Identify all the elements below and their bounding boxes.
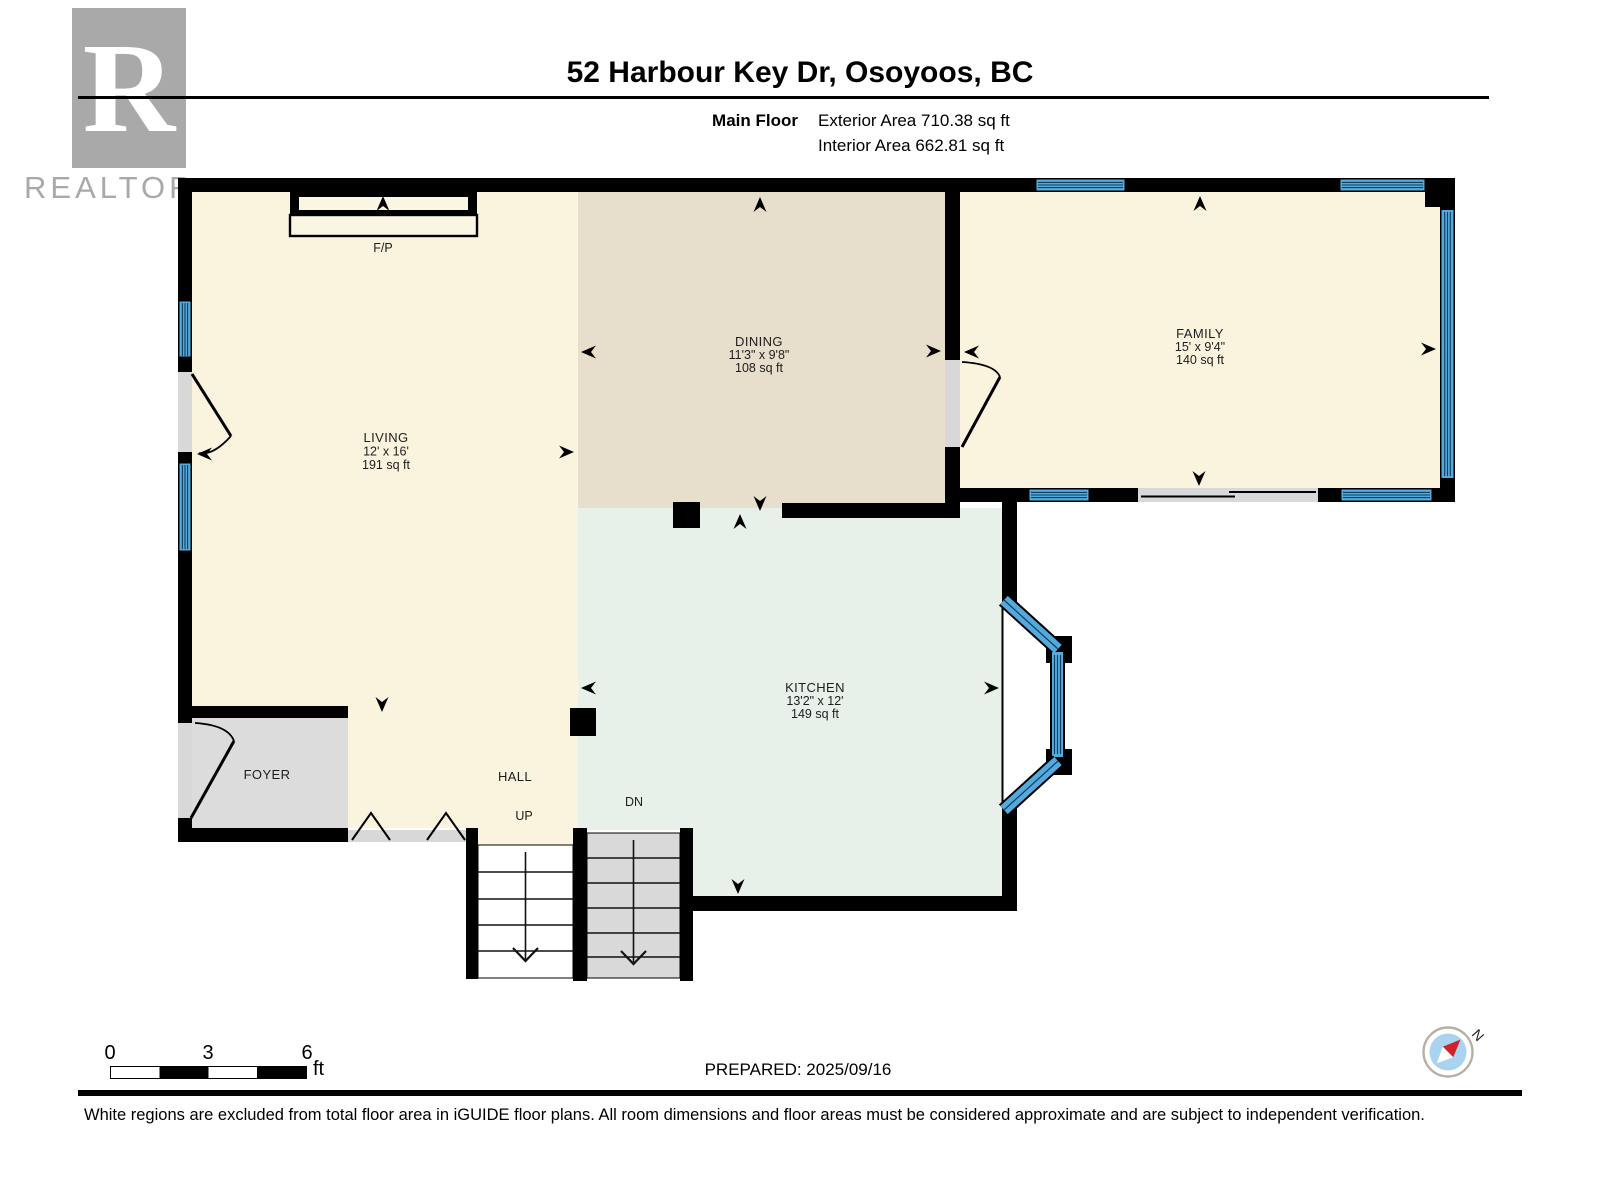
scale-tick-0: 0 <box>95 1042 125 1065</box>
scale-unit: ft <box>313 1058 324 1081</box>
compass-north-label: N <box>1469 1026 1488 1044</box>
window <box>1030 490 1089 501</box>
stairs-down <box>587 833 680 978</box>
foyer-label: FOYER <box>244 767 291 782</box>
window <box>1442 210 1454 478</box>
scale-tick-3: 3 <box>193 1042 223 1065</box>
page: R REALTOR® 52 Harbour Key Dr, Osoyoos, B… <box>0 0 1600 1200</box>
dining-label: DINING <box>735 334 783 349</box>
family-area: 140 sq ft <box>1176 353 1224 367</box>
window <box>1341 180 1425 191</box>
column-post <box>673 502 700 528</box>
hall-label: HALL <box>498 769 532 784</box>
disclaimer-text: White regions are excluded from total fl… <box>84 1106 1544 1125</box>
living-area: 191 sq ft <box>362 458 410 472</box>
window <box>180 302 191 357</box>
family-dims: 15' x 9'4" <box>1175 340 1225 354</box>
living-dims: 12' x 16' <box>363 445 409 459</box>
family-label: FAMILY <box>1176 326 1224 341</box>
fireplace-label: F/P <box>373 241 392 255</box>
room-fills <box>192 192 1440 896</box>
living-label: LIVING <box>363 430 408 445</box>
kitchen-dims: 13'2" x 12' <box>786 694 843 708</box>
bay-window <box>1055 652 1061 757</box>
window <box>180 464 191 551</box>
footer-divider <box>78 1090 1522 1096</box>
prepared-date: PREPARED: 2025/09/16 <box>648 1060 948 1080</box>
dining-area: 108 sq ft <box>735 361 783 375</box>
window <box>1342 490 1432 501</box>
kitchen-label: KITCHEN <box>785 680 845 695</box>
scale-bar <box>110 1066 307 1079</box>
up-label: UP <box>515 809 532 823</box>
kitchen-area: 149 sq ft <box>791 707 839 721</box>
compass-icon: N <box>1416 1020 1504 1086</box>
window <box>1037 180 1125 191</box>
down-label: DN <box>625 795 643 809</box>
sliding-door-family <box>1138 488 1318 502</box>
header-divider <box>78 96 1489 99</box>
dining-dims: 11'3" x 9'8" <box>729 348 790 362</box>
column-post <box>570 708 596 736</box>
stairs-up <box>478 845 573 978</box>
floor-plan: LIVING 12' x 16' 191 sq ft DINING 11'3" … <box>0 0 1600 1200</box>
